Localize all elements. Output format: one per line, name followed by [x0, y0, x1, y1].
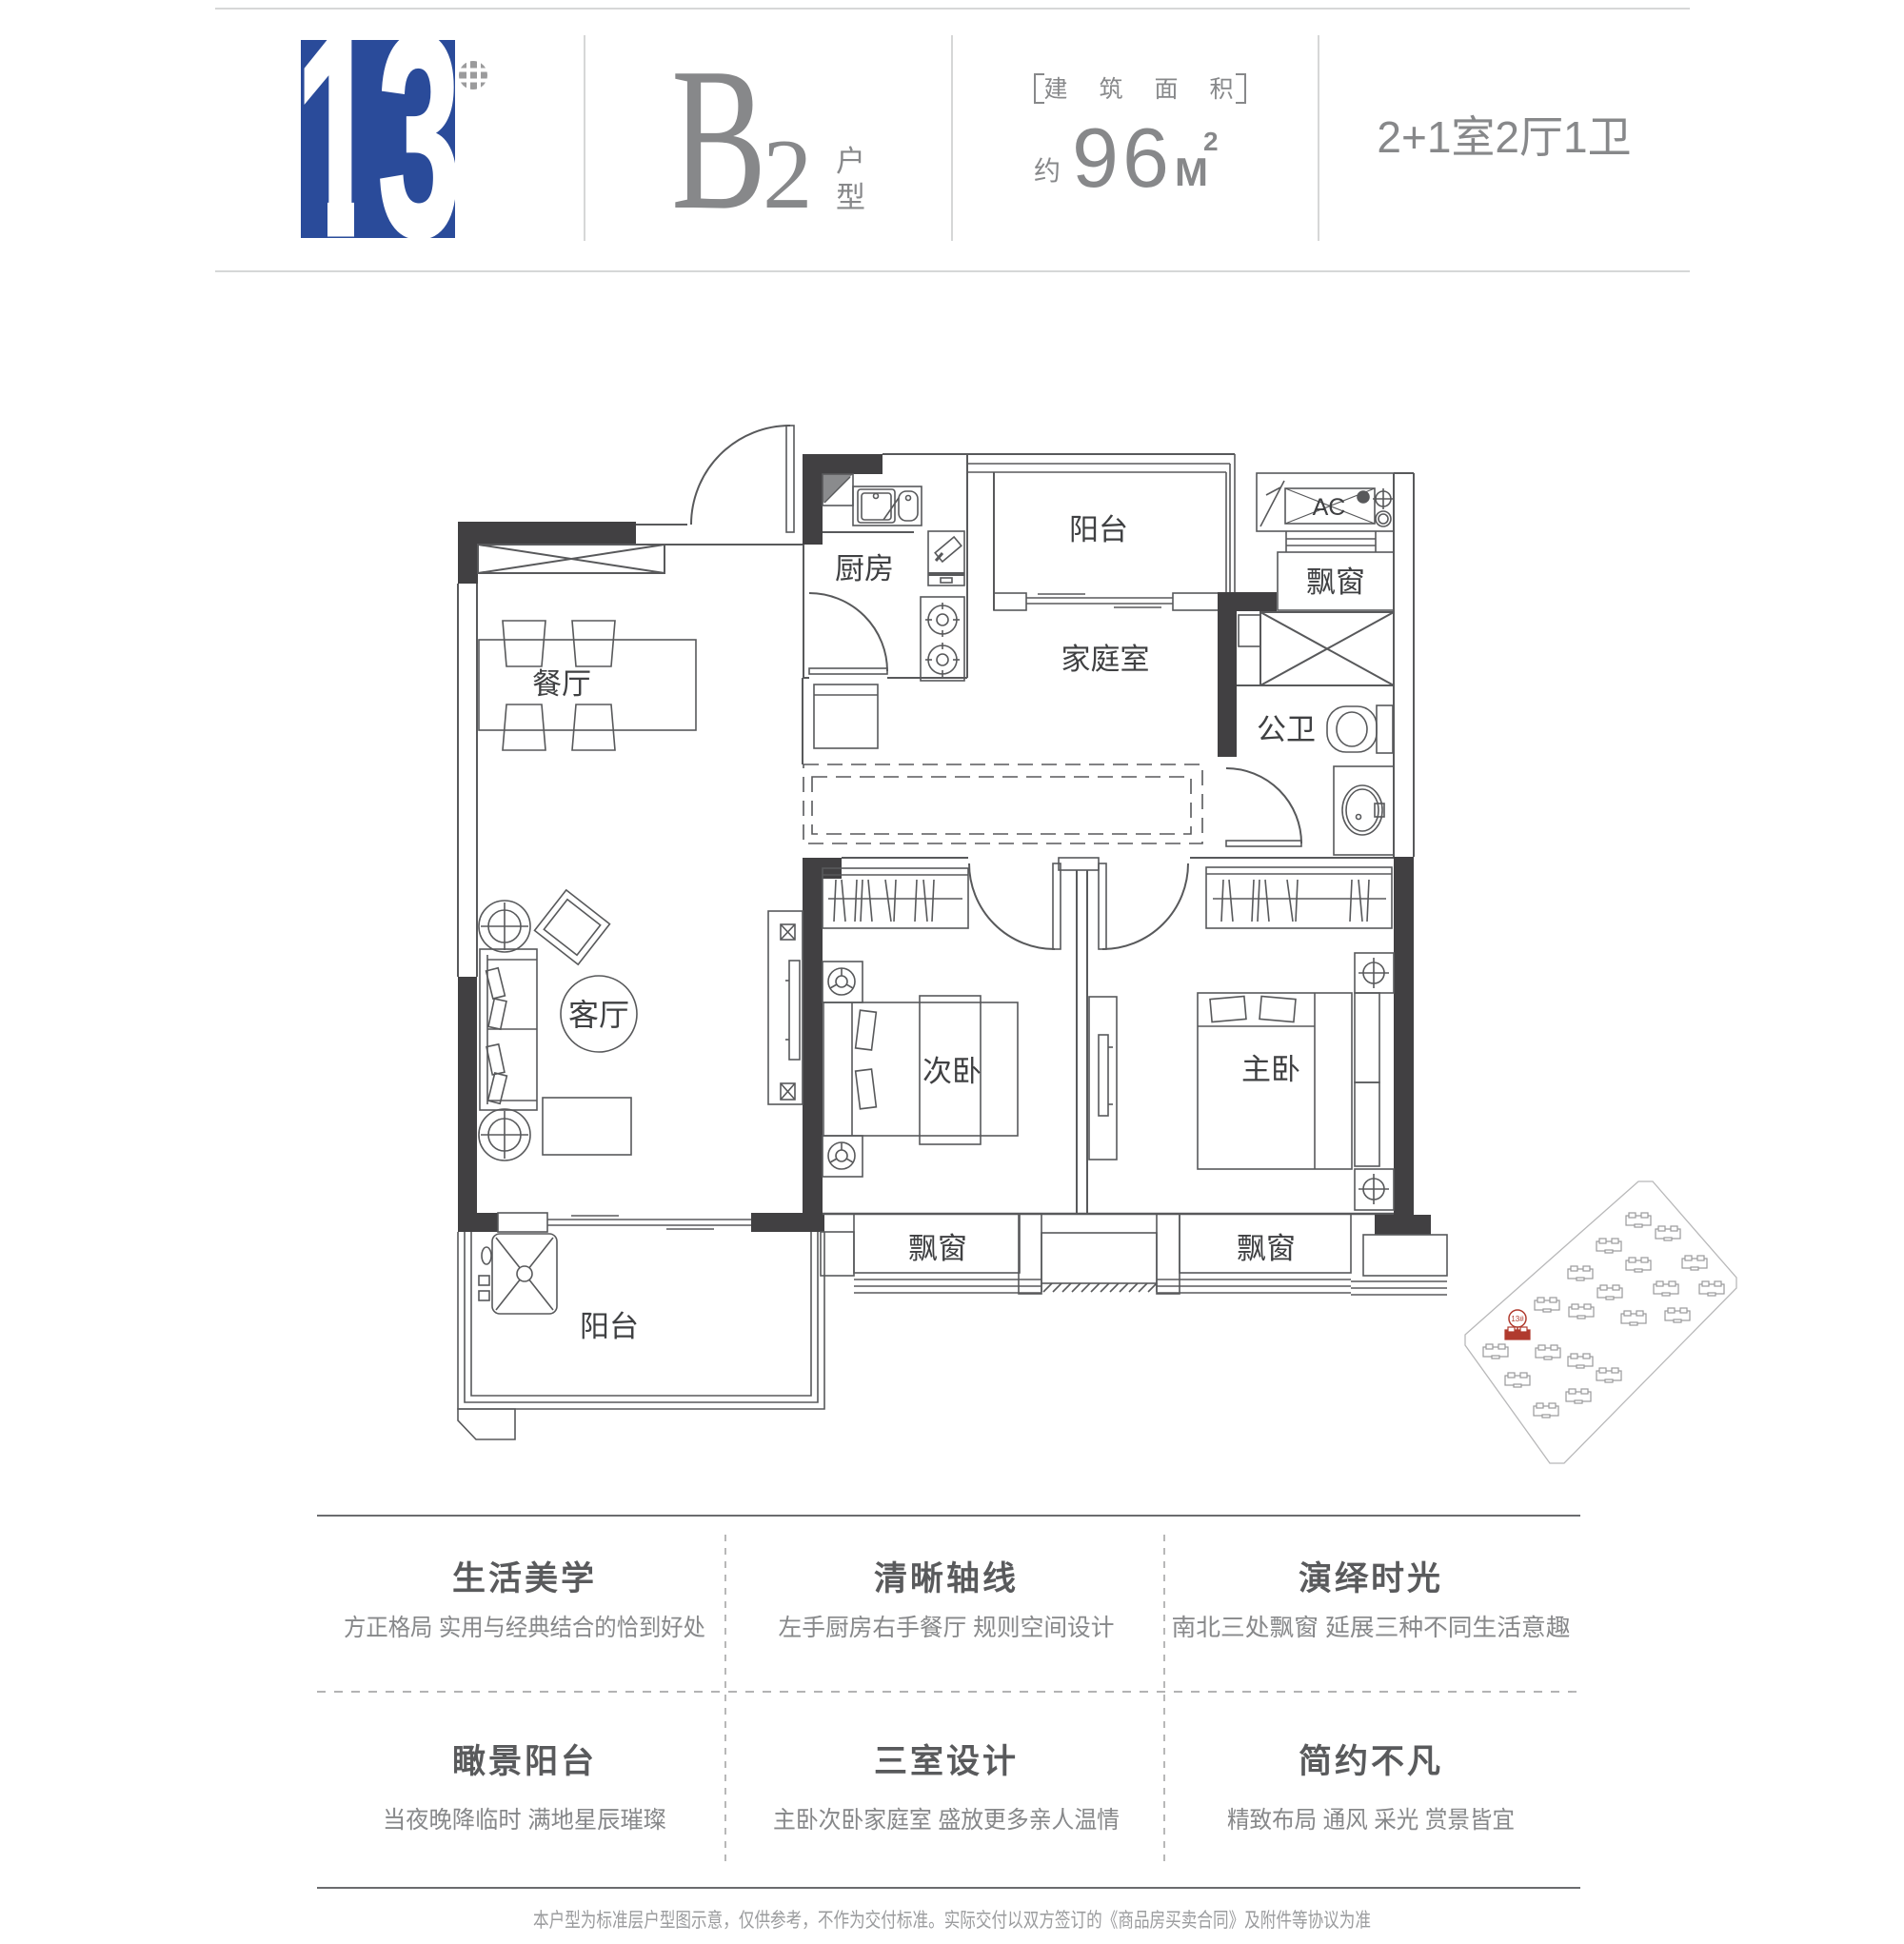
- svg-text:飘窗: 飘窗: [1237, 1232, 1296, 1265]
- svg-text:AC: AC: [1313, 494, 1346, 521]
- svg-text:家庭室: 家庭室: [1061, 643, 1150, 676]
- svg-text:2: 2: [763, 118, 813, 229]
- svg-text:演绎时光: 演绎时光: [1299, 1560, 1443, 1597]
- svg-text:清晰轴线: 清晰轴线: [874, 1560, 1019, 1597]
- svg-text:本户型为标准层户型图示意，仅供参考，不作为交付标准。实际交付: 本户型为标准层户型图示意，仅供参考，不作为交付标准。实际交付以双方签订的《商品房…: [533, 1910, 1371, 1932]
- svg-text:阳台: 阳台: [1069, 513, 1128, 546]
- svg-text:M: M: [1175, 149, 1208, 194]
- svg-text:飘窗: 飘窗: [908, 1232, 967, 1265]
- svg-text:B: B: [671, 27, 766, 253]
- svg-text:次卧: 次卧: [922, 1055, 982, 1088]
- svg-text:公卫: 公卫: [1257, 713, 1316, 746]
- svg-text:阳台: 阳台: [580, 1310, 639, 1343]
- svg-text:客厅: 客厅: [568, 998, 629, 1032]
- svg-text:南北三处飘窗 延展三种不同生活意趣: 南北三处飘窗 延展三种不同生活意趣: [1172, 1615, 1571, 1641]
- svg-text:2: 2: [1203, 127, 1219, 156]
- svg-text:13: 13: [295, 0, 461, 295]
- svg-text:2+1室2厅1卫: 2+1室2厅1卫: [1377, 112, 1631, 162]
- svg-text:积: 积: [1209, 76, 1233, 103]
- svg-text:三室设计: 三室设计: [874, 1742, 1019, 1780]
- svg-text:当夜晚降临时 满地星辰璀璨: 当夜晚降临时 满地星辰璀璨: [383, 1807, 666, 1834]
- svg-text:约: 约: [1034, 156, 1061, 186]
- svg-text:主卧次卧家庭室 盛放更多亲人温情: 主卧次卧家庭室 盛放更多亲人温情: [773, 1807, 1120, 1834]
- svg-text:建: 建: [1043, 76, 1067, 103]
- svg-text:户: 户: [836, 145, 865, 178]
- svg-text:筑: 筑: [1099, 76, 1122, 103]
- svg-text:生活美学: 生活美学: [452, 1559, 597, 1597]
- svg-text:方正格局 实用与经典结合的恰到好处: 方正格局 实用与经典结合的恰到好处: [344, 1615, 705, 1641]
- svg-text:简约不凡: 简约不凡: [1299, 1743, 1443, 1780]
- svg-text:型: 型: [836, 181, 865, 214]
- svg-text:餐厅: 餐厅: [532, 667, 591, 701]
- svg-text:主卧: 主卧: [1241, 1053, 1300, 1086]
- svg-text:面: 面: [1154, 76, 1178, 103]
- svg-text:13#: 13#: [1511, 1315, 1524, 1323]
- svg-text:厨房: 厨房: [835, 552, 894, 585]
- svg-text:96: 96: [1072, 110, 1173, 205]
- svg-text:瞰景阳台: 瞰景阳台: [452, 1743, 597, 1780]
- svg-text:精致布局 通风 采光 赏景皆宜: 精致布局 通风 采光 赏景皆宜: [1227, 1807, 1515, 1834]
- svg-text:左手厨房右手餐厅 规则空间设计: 左手厨房右手餐厅 规则空间设计: [779, 1615, 1115, 1641]
- svg-text:飘窗: 飘窗: [1306, 565, 1365, 599]
